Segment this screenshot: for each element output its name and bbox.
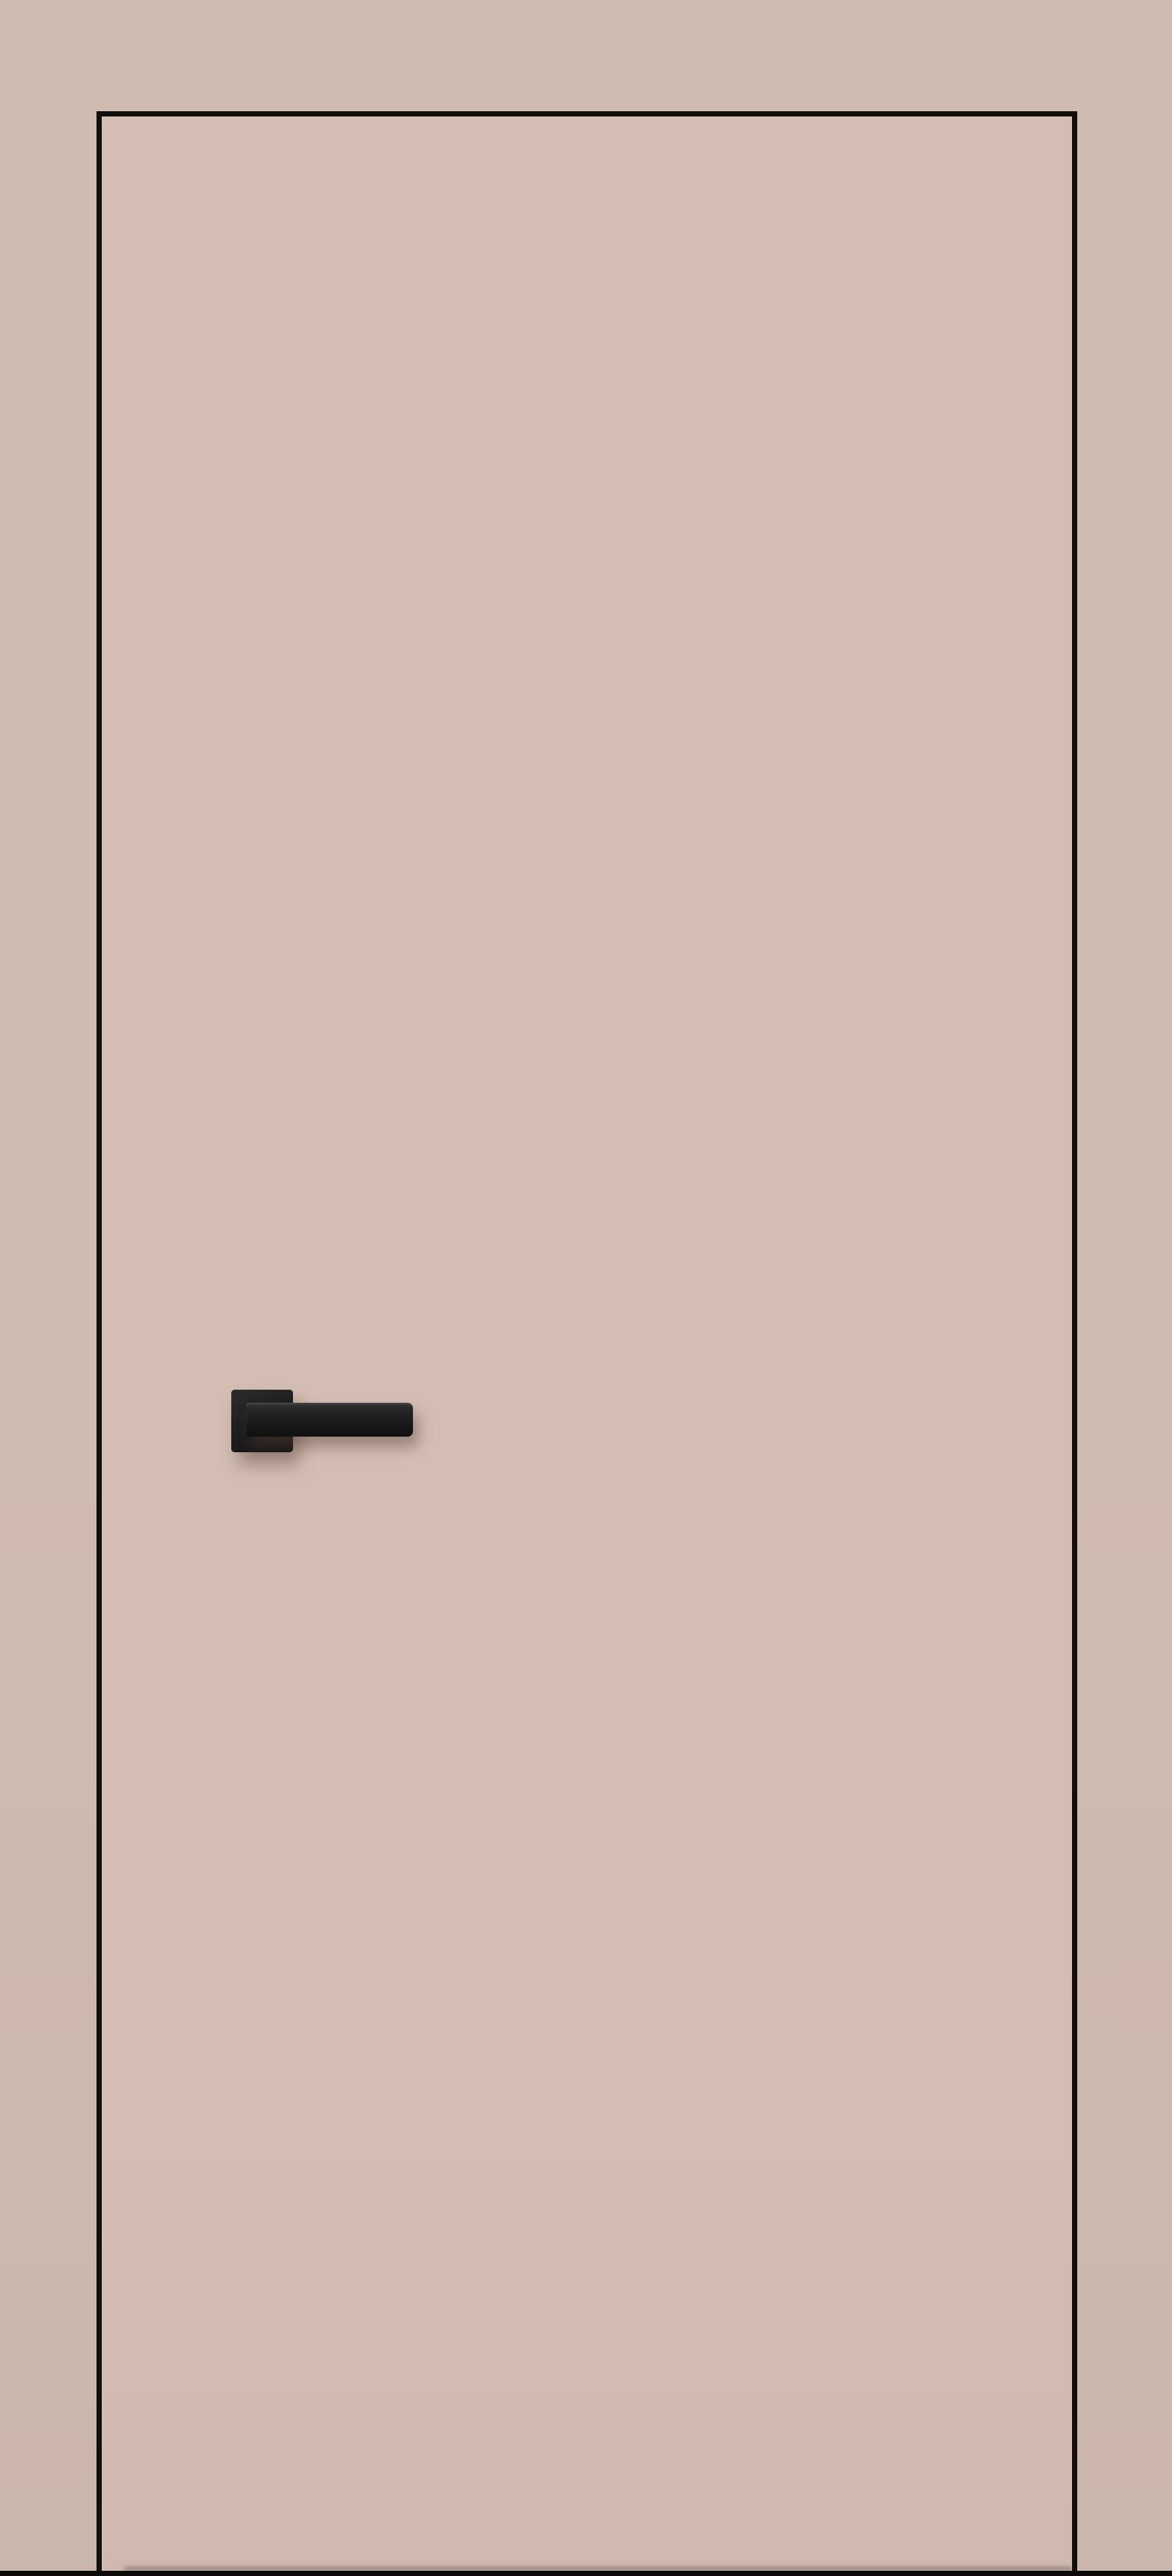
wall-background bbox=[0, 0, 1172, 2576]
handle-lever-icon bbox=[246, 1403, 413, 1437]
door-leaf bbox=[97, 111, 1077, 2576]
floor-gap-line bbox=[0, 2571, 1172, 2576]
